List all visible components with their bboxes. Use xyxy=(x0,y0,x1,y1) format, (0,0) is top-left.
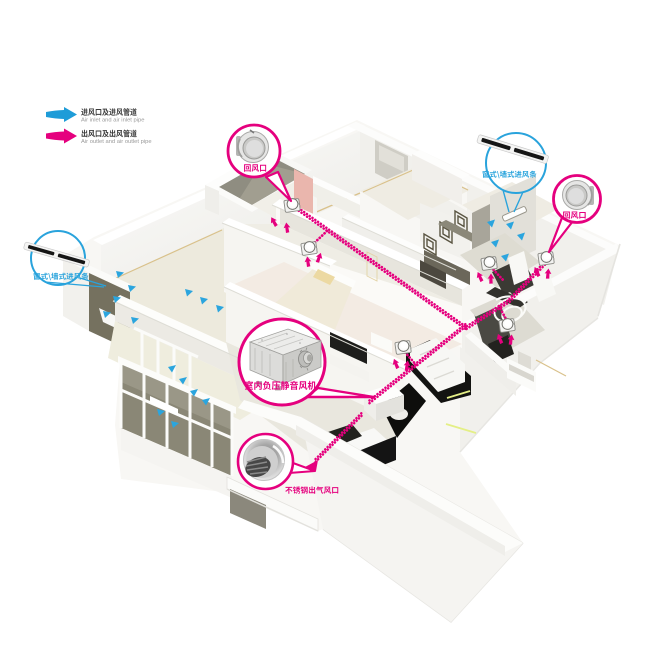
svg-text:Air inlet and air inlet pipe: Air inlet and air inlet pipe xyxy=(81,118,144,124)
svg-text:Air outlet and air outlet pipe: Air outlet and air outlet pipe xyxy=(81,139,152,145)
